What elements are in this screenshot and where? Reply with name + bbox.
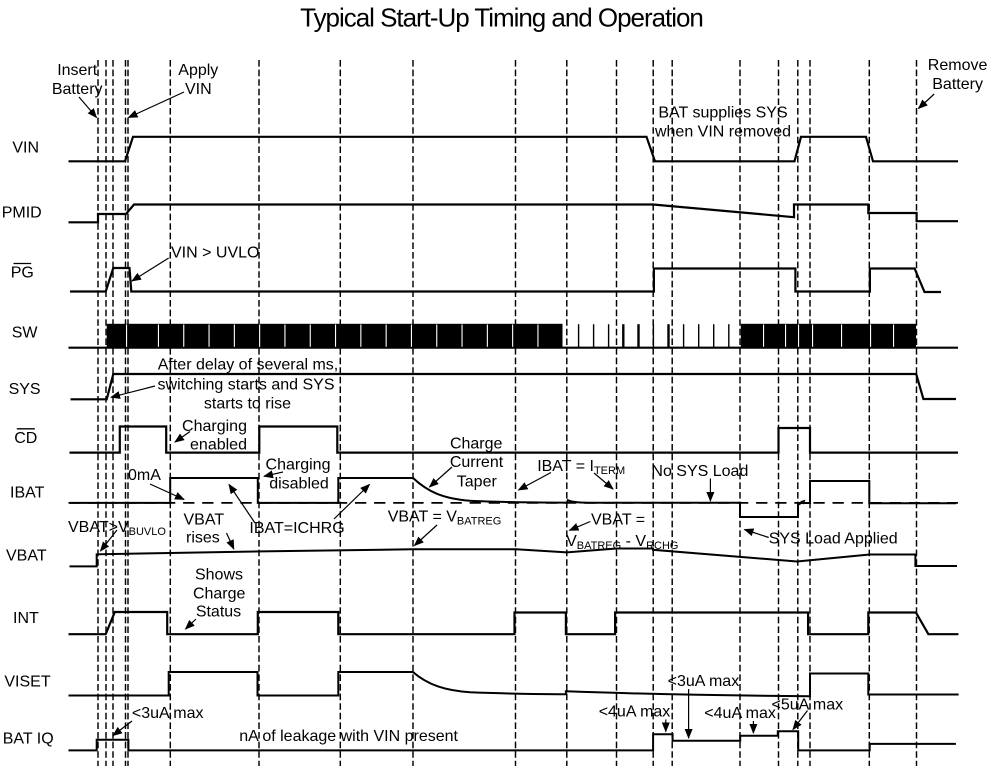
svg-text:rises: rises xyxy=(186,529,220,546)
svg-text:disabled: disabled xyxy=(269,475,329,492)
svg-text:Battery: Battery xyxy=(52,81,103,98)
svg-text:IBAT=ICHRG: IBAT=ICHRG xyxy=(249,520,344,537)
svg-text:IBAT: IBAT xyxy=(10,485,45,502)
svg-text:Charging: Charging xyxy=(266,456,331,473)
svg-text:<3uA max: <3uA max xyxy=(668,673,740,690)
svg-text:Apply: Apply xyxy=(178,62,218,79)
svg-text:Insert: Insert xyxy=(57,62,98,79)
svg-text:BAT supplies SYS: BAT supplies SYS xyxy=(658,104,787,121)
svg-text:VBAT: VBAT xyxy=(6,547,47,564)
svg-text:switching starts and SYS: switching starts and SYS xyxy=(158,376,335,393)
svg-text:VBAT: VBAT xyxy=(183,511,224,528)
svg-text:BAT IQ: BAT IQ xyxy=(3,731,54,748)
svg-text:INT: INT xyxy=(13,610,39,627)
svg-text:<3uA max: <3uA max xyxy=(132,705,204,722)
svg-text:VIN: VIN xyxy=(185,81,212,98)
svg-text:SYS: SYS xyxy=(9,381,41,398)
svg-text:Current: Current xyxy=(450,454,504,471)
svg-text:VISET: VISET xyxy=(4,673,50,690)
svg-text:PG: PG xyxy=(11,264,34,281)
svg-text:Charge: Charge xyxy=(193,585,246,602)
svg-text:After delay of several ms,: After delay of several ms, xyxy=(158,356,339,373)
svg-text:VIN > UVLO: VIN > UVLO xyxy=(171,244,259,261)
svg-text:when VIN removed: when VIN removed xyxy=(654,123,791,140)
svg-text:Taper: Taper xyxy=(457,473,498,490)
svg-text:starts to rise: starts to rise xyxy=(204,395,291,412)
svg-text:SYS Load Applied: SYS Load Applied xyxy=(769,530,898,547)
svg-text:Shows: Shows xyxy=(195,566,243,583)
svg-text:Remove: Remove xyxy=(928,57,988,74)
svg-text:VIN: VIN xyxy=(12,139,39,156)
svg-text:enabled: enabled xyxy=(190,437,247,454)
svg-text:VBAT =: VBAT = xyxy=(591,511,645,528)
svg-text:Battery: Battery xyxy=(932,76,983,93)
svg-text:Charge: Charge xyxy=(450,435,503,452)
svg-text:Status: Status xyxy=(196,603,241,620)
svg-text:PMID: PMID xyxy=(2,204,42,221)
svg-text:No SYS Load: No SYS Load xyxy=(651,463,748,480)
svg-text:Typical Start-Up Timing and Op: Typical Start-Up Timing and Operation xyxy=(300,3,703,33)
svg-text:<4uA max: <4uA max xyxy=(599,703,671,720)
svg-text:Charging: Charging xyxy=(182,418,247,435)
svg-text:nA of leakage with VIN present: nA of leakage with VIN present xyxy=(239,728,458,745)
svg-text:<4uA max: <4uA max xyxy=(704,705,776,722)
svg-text:0mA: 0mA xyxy=(128,467,161,484)
svg-text:SW: SW xyxy=(12,325,39,342)
svg-text:CD: CD xyxy=(14,430,37,447)
